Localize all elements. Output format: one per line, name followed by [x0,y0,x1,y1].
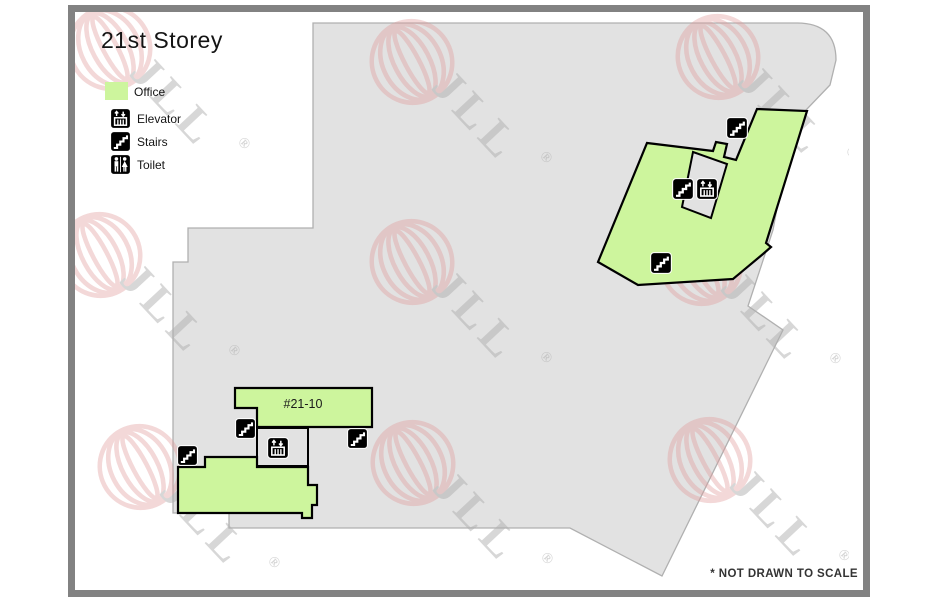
stairs-icon [651,253,672,274]
toilet-icon [111,155,131,175]
stairs-icon [348,429,368,449]
page-title: 21st Storey [101,27,223,54]
stairs-icon [236,419,256,439]
watermark-layer [45,0,861,577]
legend-label-toilet: Toilet [137,158,165,172]
legend-label-elevator: Elevator [137,112,181,126]
elevator-icon [111,109,131,129]
stairs-icon [673,179,694,200]
legend-label-office: Office [134,85,165,99]
elevator-icon [268,438,289,459]
stairs-icon [111,132,131,152]
scale-disclaimer: * NOT DRAWN TO SCALE [560,568,858,580]
office-suite-southwest [178,457,317,518]
unit-label-2110: #21-10 [258,397,348,411]
legend-label-stairs: Stairs [137,135,168,149]
stairs-icon [727,118,748,139]
elevator-icon [697,179,718,200]
office-swatch [105,82,128,100]
stairs-icon [178,446,198,466]
floorplan-page: JLL ® [0,0,940,600]
